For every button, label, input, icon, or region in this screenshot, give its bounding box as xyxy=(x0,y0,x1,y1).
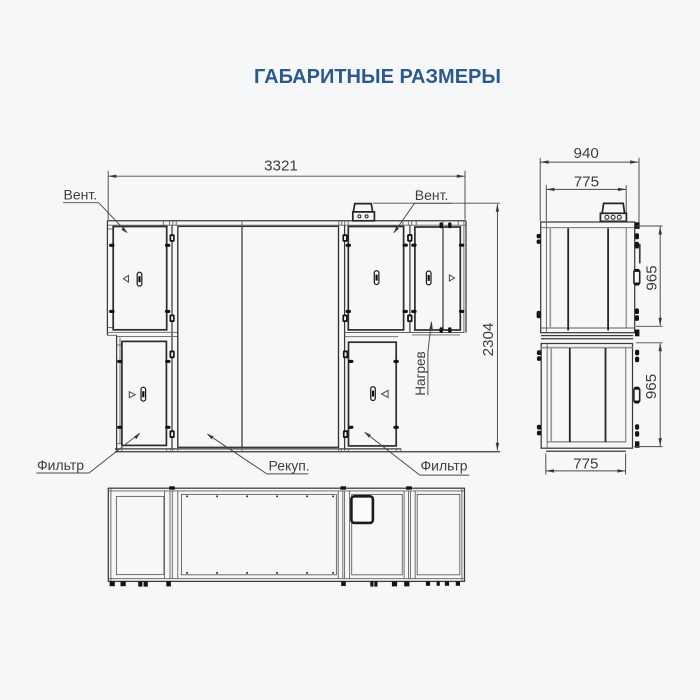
svg-text:Фильтр: Фильтр xyxy=(421,458,468,474)
svg-text:775: 775 xyxy=(574,174,599,191)
svg-text:Фильтр: Фильтр xyxy=(37,457,84,473)
svg-text:965: 965 xyxy=(643,374,660,399)
svg-text:Нагрев: Нагрев xyxy=(413,351,428,395)
svg-text:Вент.: Вент. xyxy=(64,187,98,203)
svg-text:775: 775 xyxy=(573,455,598,472)
svg-text:Рекуп.: Рекуп. xyxy=(269,458,310,474)
svg-text:Вент.: Вент. xyxy=(415,187,449,203)
svg-text:2304: 2304 xyxy=(480,323,497,357)
svg-text:940: 940 xyxy=(574,145,599,162)
svg-text:3321: 3321 xyxy=(264,158,298,175)
svg-text:965: 965 xyxy=(643,265,660,290)
svg-text:ГАБАРИТНЫЕ РАЗМЕРЫ: ГАБАРИТНЫЕ РАЗМЕРЫ xyxy=(254,66,501,88)
